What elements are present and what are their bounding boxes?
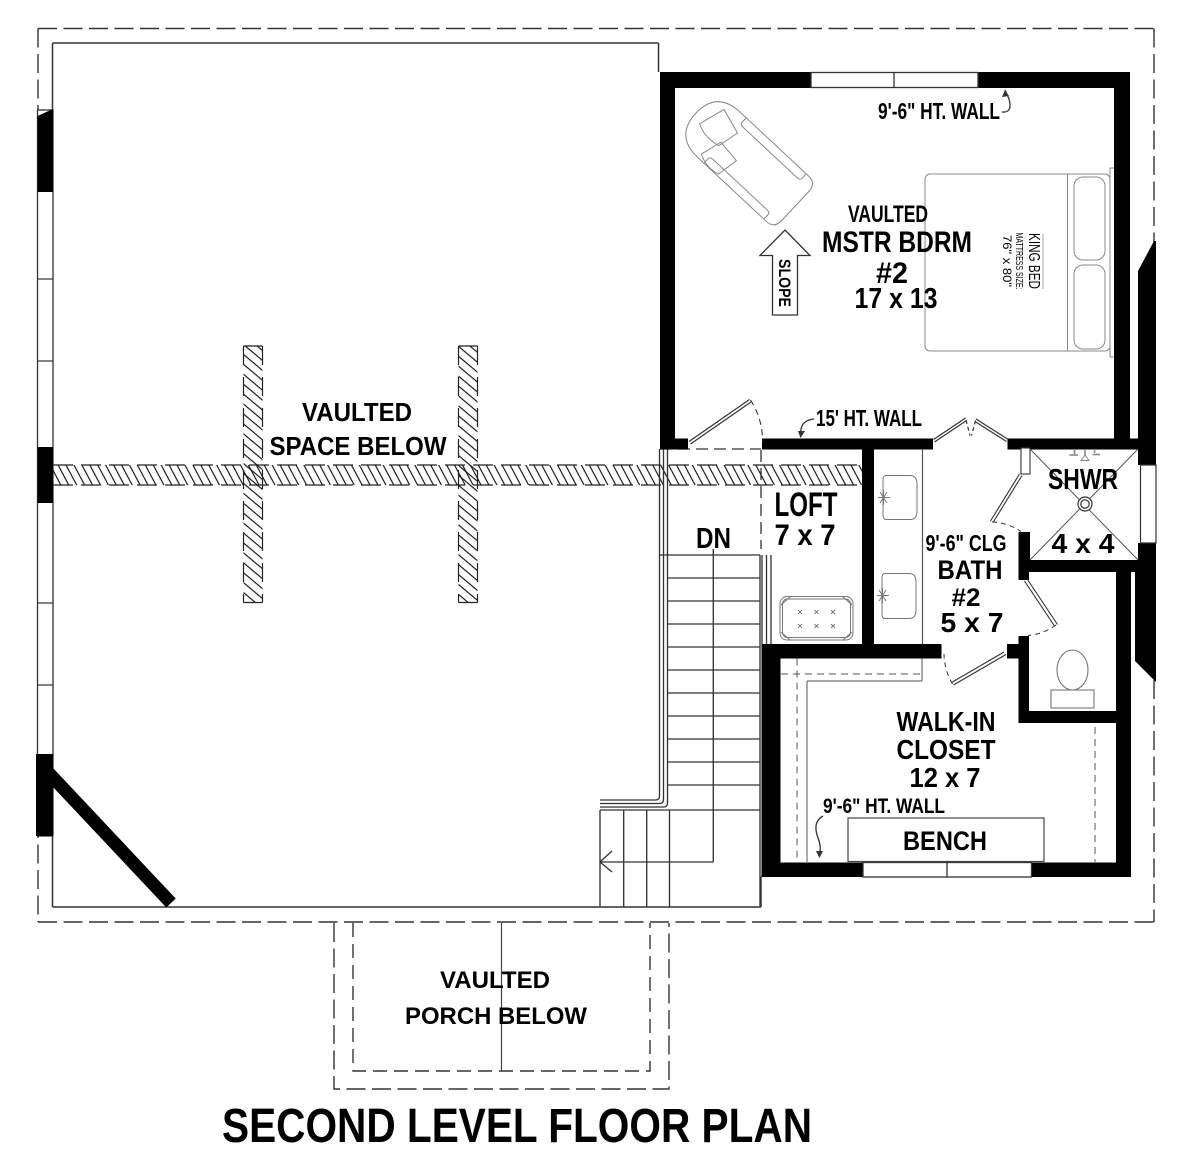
svg-text:WALK-IN: WALK-IN bbox=[897, 706, 996, 737]
svg-text:DN: DN bbox=[696, 523, 731, 555]
svg-text:PORCH BELOW: PORCH BELOW bbox=[405, 1003, 587, 1030]
svg-text:VAULTED: VAULTED bbox=[848, 201, 928, 228]
svg-text:9'-6" HT. WALL: 9'-6" HT. WALL bbox=[823, 795, 945, 818]
svg-text:9'-6" CLG: 9'-6" CLG bbox=[926, 530, 1007, 556]
svg-text:9'-6" HT. WALL: 9'-6" HT. WALL bbox=[878, 98, 1000, 124]
svg-text:VAULTED: VAULTED bbox=[302, 397, 412, 427]
svg-text:CLOSET: CLOSET bbox=[897, 734, 996, 765]
svg-text:76" x 80": 76" x 80" bbox=[1000, 235, 1012, 287]
svg-text:KING BED: KING BED bbox=[1025, 233, 1042, 289]
svg-text:SECOND LEVEL FLOOR PLAN: SECOND LEVEL FLOOR PLAN bbox=[222, 1100, 812, 1153]
svg-text:15' HT. WALL: 15' HT. WALL bbox=[816, 405, 922, 431]
svg-text:12 x 7: 12 x 7 bbox=[910, 762, 981, 793]
svg-text:VAULTED: VAULTED bbox=[440, 967, 550, 994]
svg-text:5 x 7: 5 x 7 bbox=[941, 607, 1004, 638]
svg-text:SHWR: SHWR bbox=[1048, 464, 1118, 496]
svg-text:BENCH: BENCH bbox=[903, 826, 987, 856]
svg-text:MATTRESS SIZE:: MATTRESS SIZE: bbox=[1013, 233, 1024, 290]
svg-text:SLOPE: SLOPE bbox=[775, 259, 794, 307]
svg-text:MSTR BDRM: MSTR BDRM bbox=[822, 226, 972, 259]
svg-text:17 x 13: 17 x 13 bbox=[855, 283, 938, 315]
svg-text:BATH: BATH bbox=[938, 555, 1003, 585]
svg-text:7 x 7: 7 x 7 bbox=[775, 519, 836, 552]
svg-text:4 x 4: 4 x 4 bbox=[1052, 528, 1115, 559]
svg-text:SPACE BELOW: SPACE BELOW bbox=[270, 431, 447, 461]
